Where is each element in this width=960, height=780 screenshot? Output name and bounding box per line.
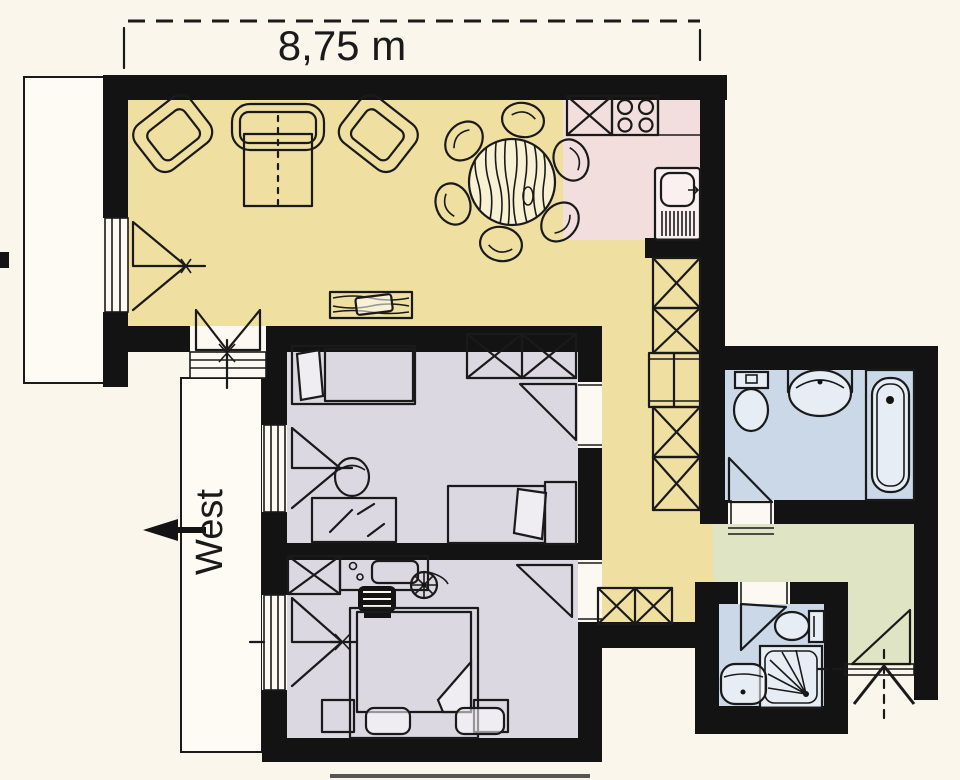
small-bathroom-door-opening xyxy=(738,582,790,604)
wall-segment xyxy=(695,706,848,734)
wall-segment xyxy=(700,75,725,524)
wall-segment xyxy=(914,346,938,700)
pillow xyxy=(456,708,504,734)
toilet-small xyxy=(775,611,824,642)
shower xyxy=(760,646,822,708)
scan-artifact xyxy=(330,774,590,778)
wall-segment xyxy=(774,500,914,524)
bedroom1-window-opening xyxy=(262,425,287,512)
pillow xyxy=(366,708,410,734)
kitchen-sink-unit xyxy=(655,168,700,240)
wall-segment xyxy=(103,326,190,352)
west-window-opening xyxy=(103,218,128,312)
scan-artifact xyxy=(0,252,9,268)
dining-table xyxy=(469,139,555,225)
wall-segment xyxy=(103,75,128,218)
balcony-west xyxy=(24,77,105,383)
wall-segment xyxy=(700,346,938,370)
wall-segment xyxy=(266,326,602,352)
bathroom-door-opening xyxy=(728,500,774,524)
bedroom2-window-opening xyxy=(262,595,287,690)
west-label: West xyxy=(189,489,231,575)
drainer-hatch xyxy=(662,211,694,236)
wall-segment xyxy=(578,326,602,382)
dimension-label: 8,75 m xyxy=(278,22,406,69)
washbasin xyxy=(788,370,852,416)
wall-segment xyxy=(578,448,602,560)
wall-segment xyxy=(262,543,602,560)
bathtub xyxy=(866,370,914,500)
washbasin-small xyxy=(721,664,766,704)
fan-stool xyxy=(411,572,437,598)
wall-segment xyxy=(578,622,697,648)
floor-plan-drawing: 8,75 m West xyxy=(0,0,960,780)
floor-plan-page: 8,75 m West xyxy=(0,0,960,780)
bedroom1-door-opening xyxy=(578,382,602,448)
wall-segment xyxy=(262,738,602,762)
toilet xyxy=(734,372,768,431)
wall-segment xyxy=(700,500,728,524)
